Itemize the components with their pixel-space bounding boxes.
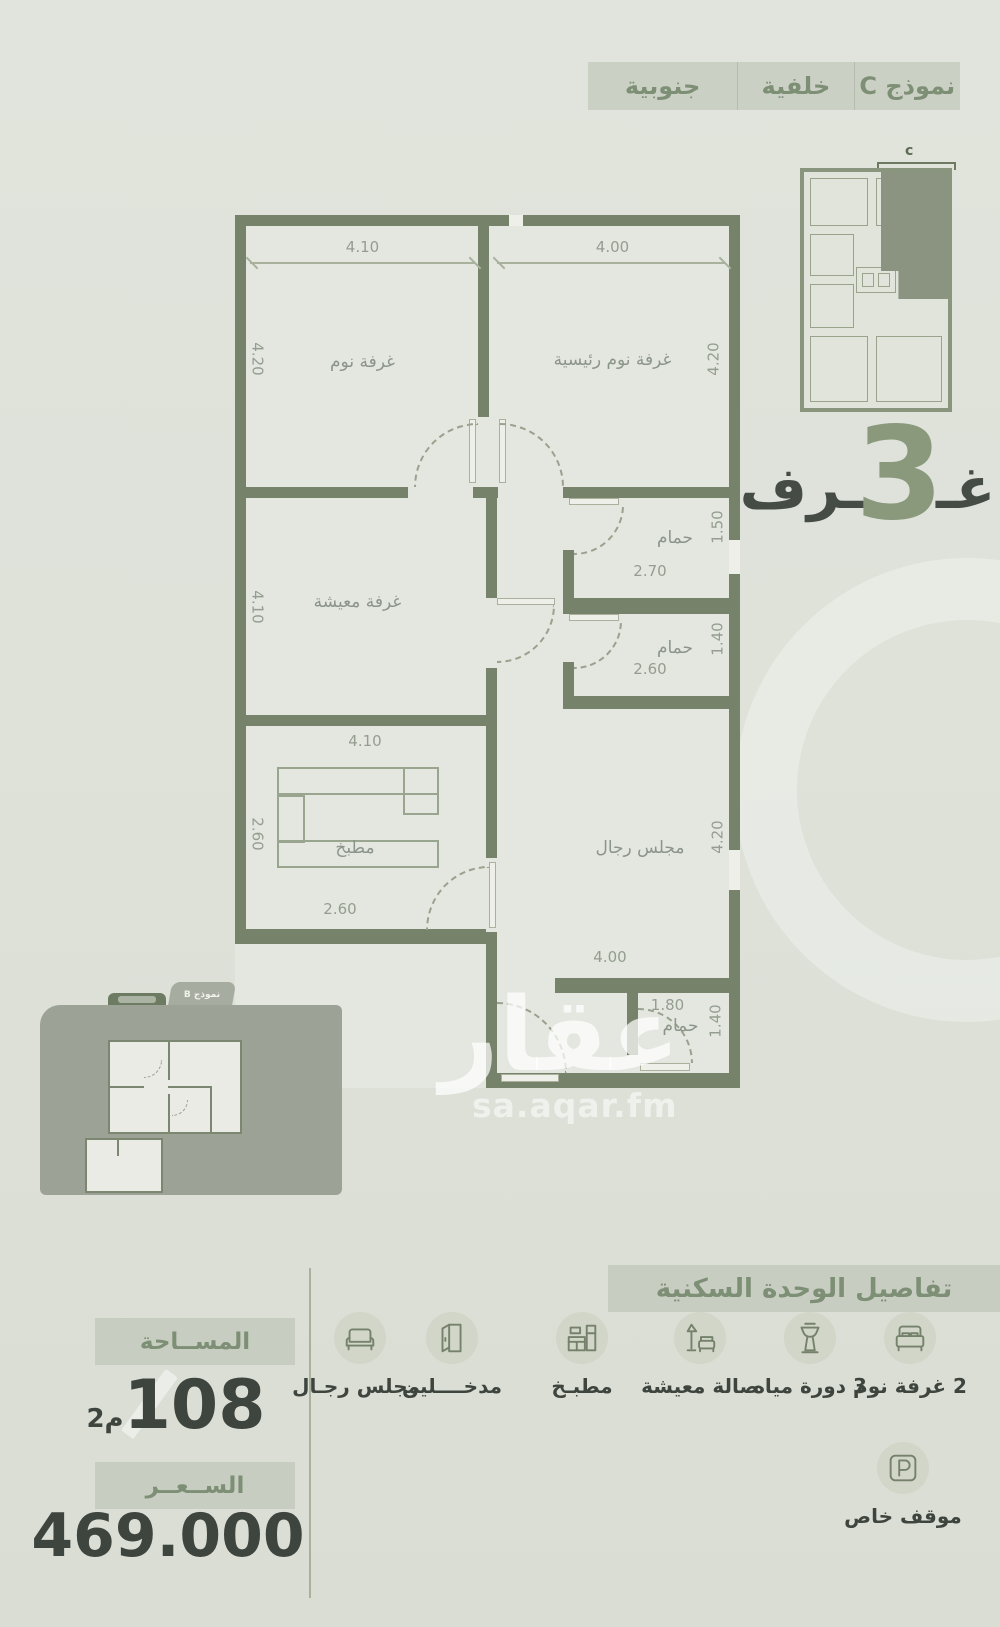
wall-mid [473,487,498,498]
door-icon [426,1312,478,1364]
flyer-page: نموذج C خلفية جنوبية c غـ 3 ـرف [0,0,1000,1627]
feature-kitchen: مطبـخ [522,1312,642,1398]
room-label-bath2: حمام [635,638,715,658]
elevator-shaft [878,273,890,287]
key-plan-unit [810,234,854,276]
feature-parking: موقف خاص [843,1442,963,1528]
building-key-plan [800,168,952,412]
door-leaf [569,614,619,621]
mini-wall [210,1086,212,1132]
sofa-icon [334,1312,386,1364]
door-leaf [497,598,555,605]
price-number: 469.000 [31,1506,304,1566]
elevator-shaft [862,273,874,287]
dim-kitchen-width: 2.60 [275,900,405,918]
wall-hall [486,498,497,598]
door-leaf [489,862,496,928]
wall-mid [246,487,408,498]
dim-majlis-height: 4.20 [709,820,727,853]
feature-label: مطبـخ [522,1374,642,1398]
window-mark [729,850,740,890]
lamp-sofa-icon [674,1312,726,1364]
key-plan-unit [810,336,868,402]
wall-mid [563,487,729,498]
room-label-bedroom: غرفة نوم [275,352,450,372]
door-leaf [569,498,619,505]
room-label-bath1: حمام [635,528,715,548]
kitchen-counter [277,795,305,843]
badge-facing: جنوبية [588,62,737,110]
watermark-brand: عقار [440,985,680,1087]
rooms-word-suffix: ـرف [740,459,863,525]
wall-bedroom-divider [478,215,489,417]
feature-label: 3 دورة مياه [750,1374,870,1398]
rooms-count-headline: غـ 3 ـرف [770,410,965,525]
dim-bath2-height: 1.40 [709,622,727,655]
feature-label: مجلس رجـال [300,1374,420,1398]
dim-majlis-width: 4.00 [545,948,675,966]
wall-bath1-left [563,550,574,598]
rooms-word-prefix: غـ [936,459,995,525]
dimension-line [250,262,475,264]
area-number: 108 [124,1372,266,1440]
details-title-bar: تفاصيل الوحدة السكنية [608,1265,1000,1312]
dim-master-height: 4.20 [705,342,723,375]
mini-wall [110,1086,144,1088]
wall-bath2-bottom [563,696,729,709]
inset-tab-secondary-text [118,996,156,1003]
mini-door-arc [144,1060,162,1078]
wall-bath-mid [563,598,729,614]
inset-tab-label: نموذج B [184,990,220,1000]
rooms-number: 3 [855,425,944,525]
mini-floor-plan-annex [85,1138,163,1193]
price-value-row: 469.000 [28,1506,300,1566]
wall-kitchen-bottom [235,929,486,944]
brand-ghost-logo [735,558,1000,1022]
badge-model: نموذج C [854,62,960,110]
dim-bath2-width: 2.60 [580,660,720,678]
inset-tab-model-b: نموذج B [168,982,236,1007]
feature-majlis: مجلس رجـال [300,1312,420,1398]
dimension-line [497,262,725,264]
wall-left [235,215,246,944]
area-label-bar: المســاحة [95,1318,295,1365]
room-label-living: غرفة معيشة [270,592,445,612]
dim-bath1-height: 1.50 [709,510,727,543]
room-label-master: غرفة نوم رئيسية [515,350,710,370]
dim-bath3-height: 1.40 [707,1004,725,1037]
feature-label: موقف خاص [843,1504,963,1528]
kitchen-icon [556,1312,608,1364]
room-label-majlis: مجلس رجال [565,838,715,858]
room-label-kitchen: مطبخ [295,838,415,858]
key-plan-unit [876,336,942,402]
dim-master-width: 4.00 [520,238,705,256]
key-plan-unit [810,178,868,226]
mini-floor-plan [108,1040,242,1134]
parking-icon [877,1442,929,1494]
window-mark [729,540,740,574]
wall-bath2-left [563,662,574,696]
dim-bedroom-width: 4.10 [275,238,450,256]
dim-living-height: 4.10 [249,590,267,623]
watermark-site: sa.aqar.fm [472,1086,677,1125]
wall-right [729,215,740,1088]
mini-wall [168,1086,212,1088]
feature-living-room: صالة معيشة [640,1312,760,1398]
feature-label: صالة معيشة [640,1374,760,1398]
floor-plan: غرفة نوم غرفة نوم رئيسية غرفة معيشة حمام… [235,210,745,1095]
header-badges: نموذج C خلفية جنوبية [588,62,960,110]
dim-bath1-width: 2.70 [580,562,720,580]
mini-wall [117,1140,119,1156]
mini-wall [168,1042,170,1080]
dim-living-width: 4.10 [275,732,455,750]
dim-bedroom-height: 4.20 [249,342,267,375]
kitchen-counter [403,767,439,815]
area-value: 108 م2 [55,1372,295,1440]
feature-bathrooms: 3 دورة مياه [750,1312,870,1398]
bed-icon [884,1312,936,1364]
mini-door-arc [172,1100,188,1116]
badge-position: خلفية [737,62,853,110]
mini-wall [168,1094,170,1132]
wall-living-bottom [246,715,486,726]
dim-kitchen-height: 2.60 [249,817,267,850]
key-plan-unit [810,284,854,328]
window-mark [509,215,523,226]
unit-letter-label: c [905,143,913,159]
wall-hall [486,668,497,858]
area-unit: م2 [86,1404,123,1440]
washbasin-icon [784,1312,836,1364]
